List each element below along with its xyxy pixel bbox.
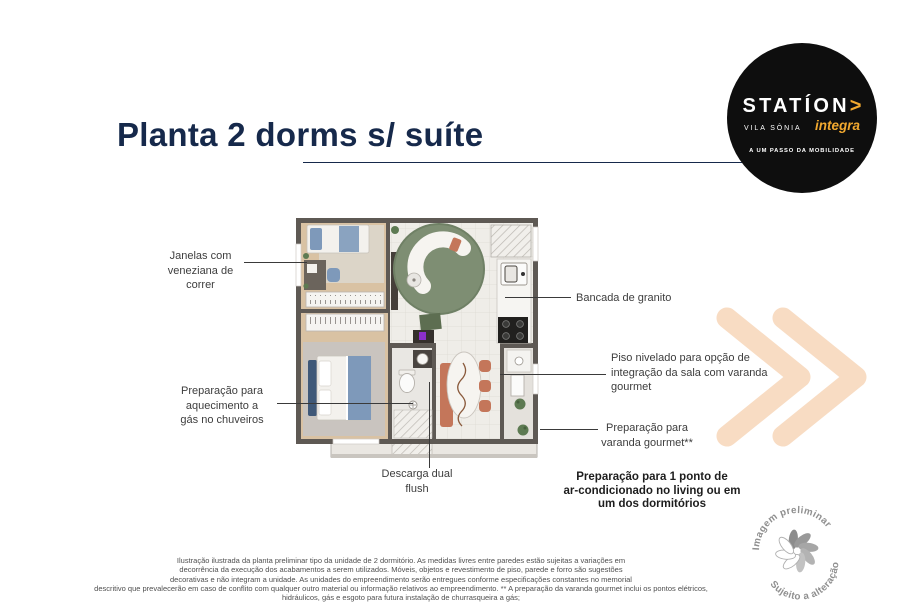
label-descarga-dual-flush: Descarga dual flush	[358, 467, 476, 496]
logo-subbrand-integra: integra	[815, 118, 860, 133]
window-varanda	[533, 364, 538, 394]
window-bedroom1	[296, 244, 301, 286]
title-underline	[303, 162, 743, 163]
pinwheel-icon	[768, 522, 826, 580]
label-ar-condicionado: Preparação para 1 ponto de ar-condiciona…	[543, 471, 761, 512]
stamp-text-bottom: Sujeito a alteração	[766, 558, 850, 608]
callout-line-descarga	[429, 382, 430, 468]
label-varanda-gourmet: Preparação para varanda gourmet**	[583, 421, 711, 450]
station-logo: STATÍON> VILA SÔNIA integra A UM PASSO D…	[727, 43, 877, 193]
callout-line-bancada	[505, 297, 571, 298]
svg-text:Sujeito a alteração: Sujeito a alteração	[766, 558, 850, 608]
logo-location: VILA SÔNIA	[744, 125, 802, 132]
label-aquecimento: Preparação para aquecimento a gás no chu…	[158, 384, 286, 428]
preliminary-stamp: Imagem preliminar Sujeito a alteração	[733, 496, 861, 608]
callout-line-aquecimento	[277, 403, 413, 404]
label-piso-nivelado: Piso nivelado para opção de integração d…	[611, 351, 789, 395]
kitchen	[491, 225, 531, 343]
logo-brand: STATÍON>	[743, 96, 862, 116]
window-bedroom2	[333, 439, 379, 444]
bedroom-1	[303, 225, 384, 307]
logo-arrow-icon: >	[850, 95, 862, 117]
window-kitchen	[533, 227, 538, 261]
page-title: Planta 2 dorms s/ suíte	[117, 116, 483, 154]
label-janelas: Janelas com veneziana de correr	[138, 249, 263, 293]
floorplan	[293, 214, 541, 466]
callout-line-piso	[500, 374, 606, 375]
disclaimer-text: Ilustração ilustrada da planta prelimina…	[55, 556, 747, 602]
logo-tagline: A UM PASSO DA MOBILIDADE	[749, 148, 855, 154]
label-bancada: Bancada de granito	[576, 291, 726, 306]
